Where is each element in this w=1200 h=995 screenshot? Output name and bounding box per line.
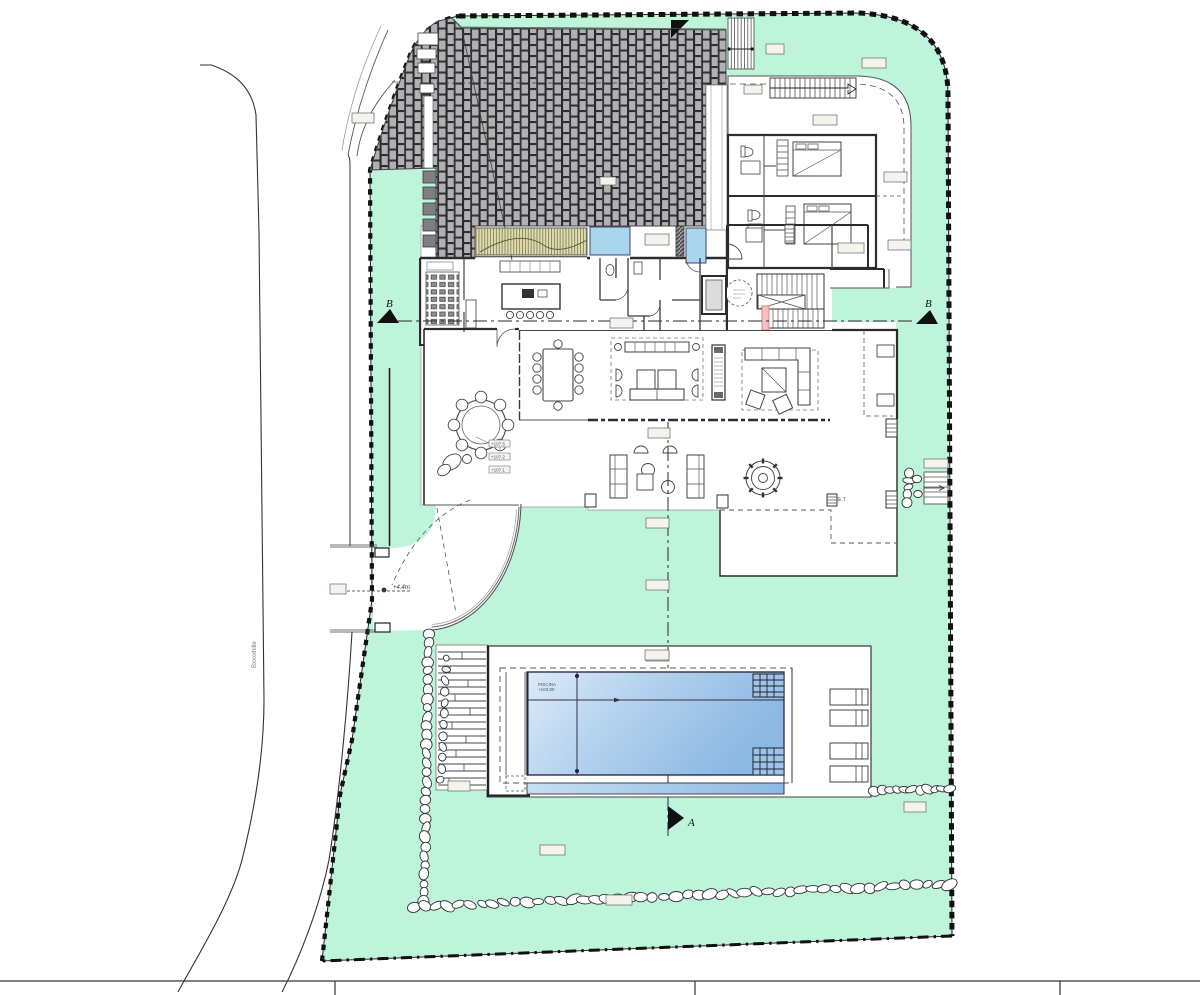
svg-text:+103.80: +103.80	[538, 687, 555, 692]
svg-text:E.T.: E.T.	[838, 497, 847, 503]
svg-text:+107.1: +107.1	[491, 468, 505, 473]
svg-text:A: A	[687, 817, 695, 829]
svg-text:+107.5: +107.5	[491, 442, 505, 447]
svg-text:Bxxxxhille: Bxxxxhille	[252, 641, 258, 668]
svg-text:B: B	[925, 298, 932, 310]
svg-text:+107.2: +107.2	[491, 455, 505, 460]
svg-text:+4.4m: +4.4m	[393, 585, 410, 591]
svg-text:B: B	[386, 298, 393, 310]
